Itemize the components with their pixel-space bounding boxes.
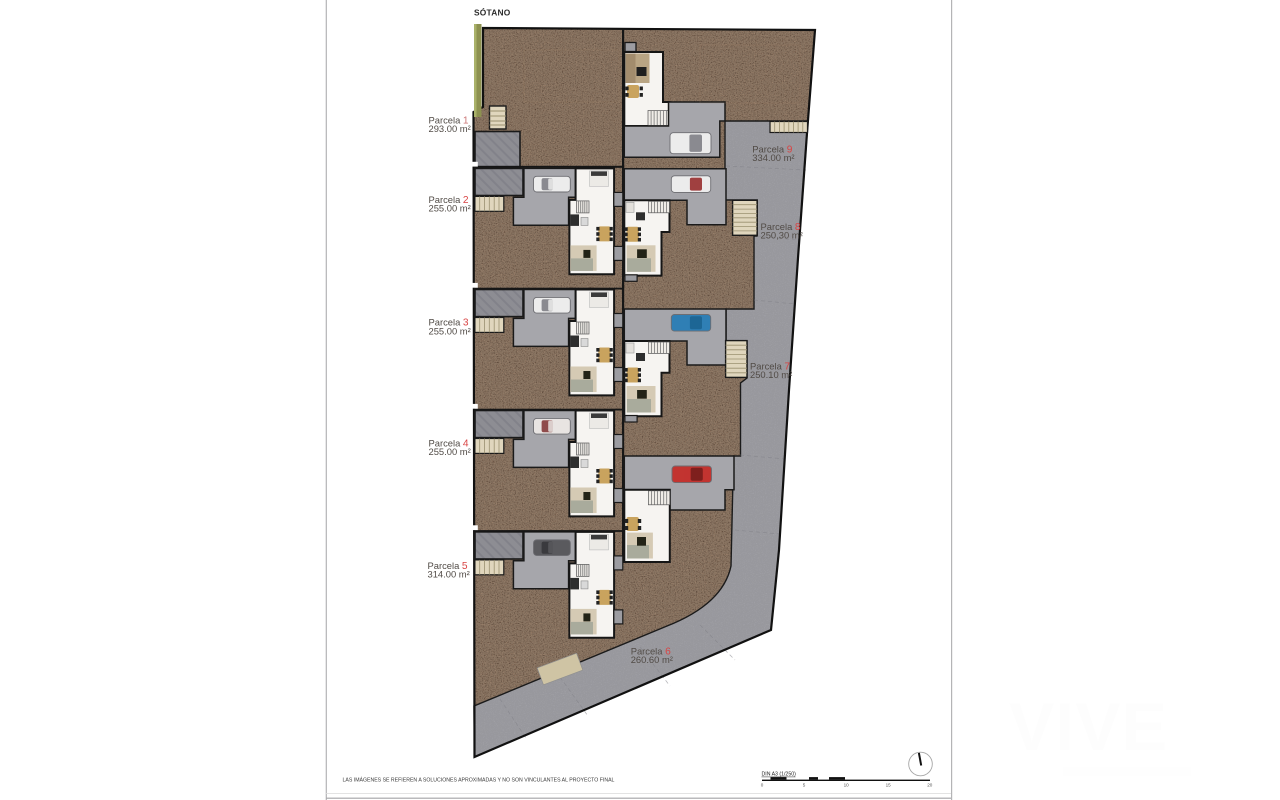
svg-text:260.60 m²: 260.60 m² bbox=[631, 654, 673, 665]
svg-text:255.00 m²: 255.00 m² bbox=[429, 446, 471, 457]
svg-text:0: 0 bbox=[761, 783, 764, 788]
svg-text:314.00 m²: 314.00 m² bbox=[428, 569, 470, 580]
svg-text:293.00 m²: 293.00 m² bbox=[429, 123, 471, 134]
svg-text:VIVE: VIVE bbox=[1009, 689, 1168, 765]
svg-text:5: 5 bbox=[803, 783, 806, 788]
svg-text:10: 10 bbox=[844, 783, 850, 788]
svg-text:DIN A3 (1/250): DIN A3 (1/250) bbox=[762, 771, 797, 777]
svg-text:250,30 m²: 250,30 m² bbox=[761, 230, 803, 241]
svg-text:250.10 m²: 250.10 m² bbox=[750, 369, 792, 380]
svg-text:SÓTANO: SÓTANO bbox=[474, 7, 511, 18]
svg-text:255.00 m²: 255.00 m² bbox=[429, 203, 471, 214]
svg-text:LAS IMÁGENES SE REFIEREN A SOL: LAS IMÁGENES SE REFIEREN A SOLUCIONES AP… bbox=[343, 777, 615, 784]
svg-text:15: 15 bbox=[886, 783, 892, 788]
svg-text:20: 20 bbox=[927, 783, 933, 788]
svg-text:334.00 m²: 334.00 m² bbox=[752, 152, 794, 163]
svg-text:255.00 m²: 255.00 m² bbox=[429, 325, 471, 336]
